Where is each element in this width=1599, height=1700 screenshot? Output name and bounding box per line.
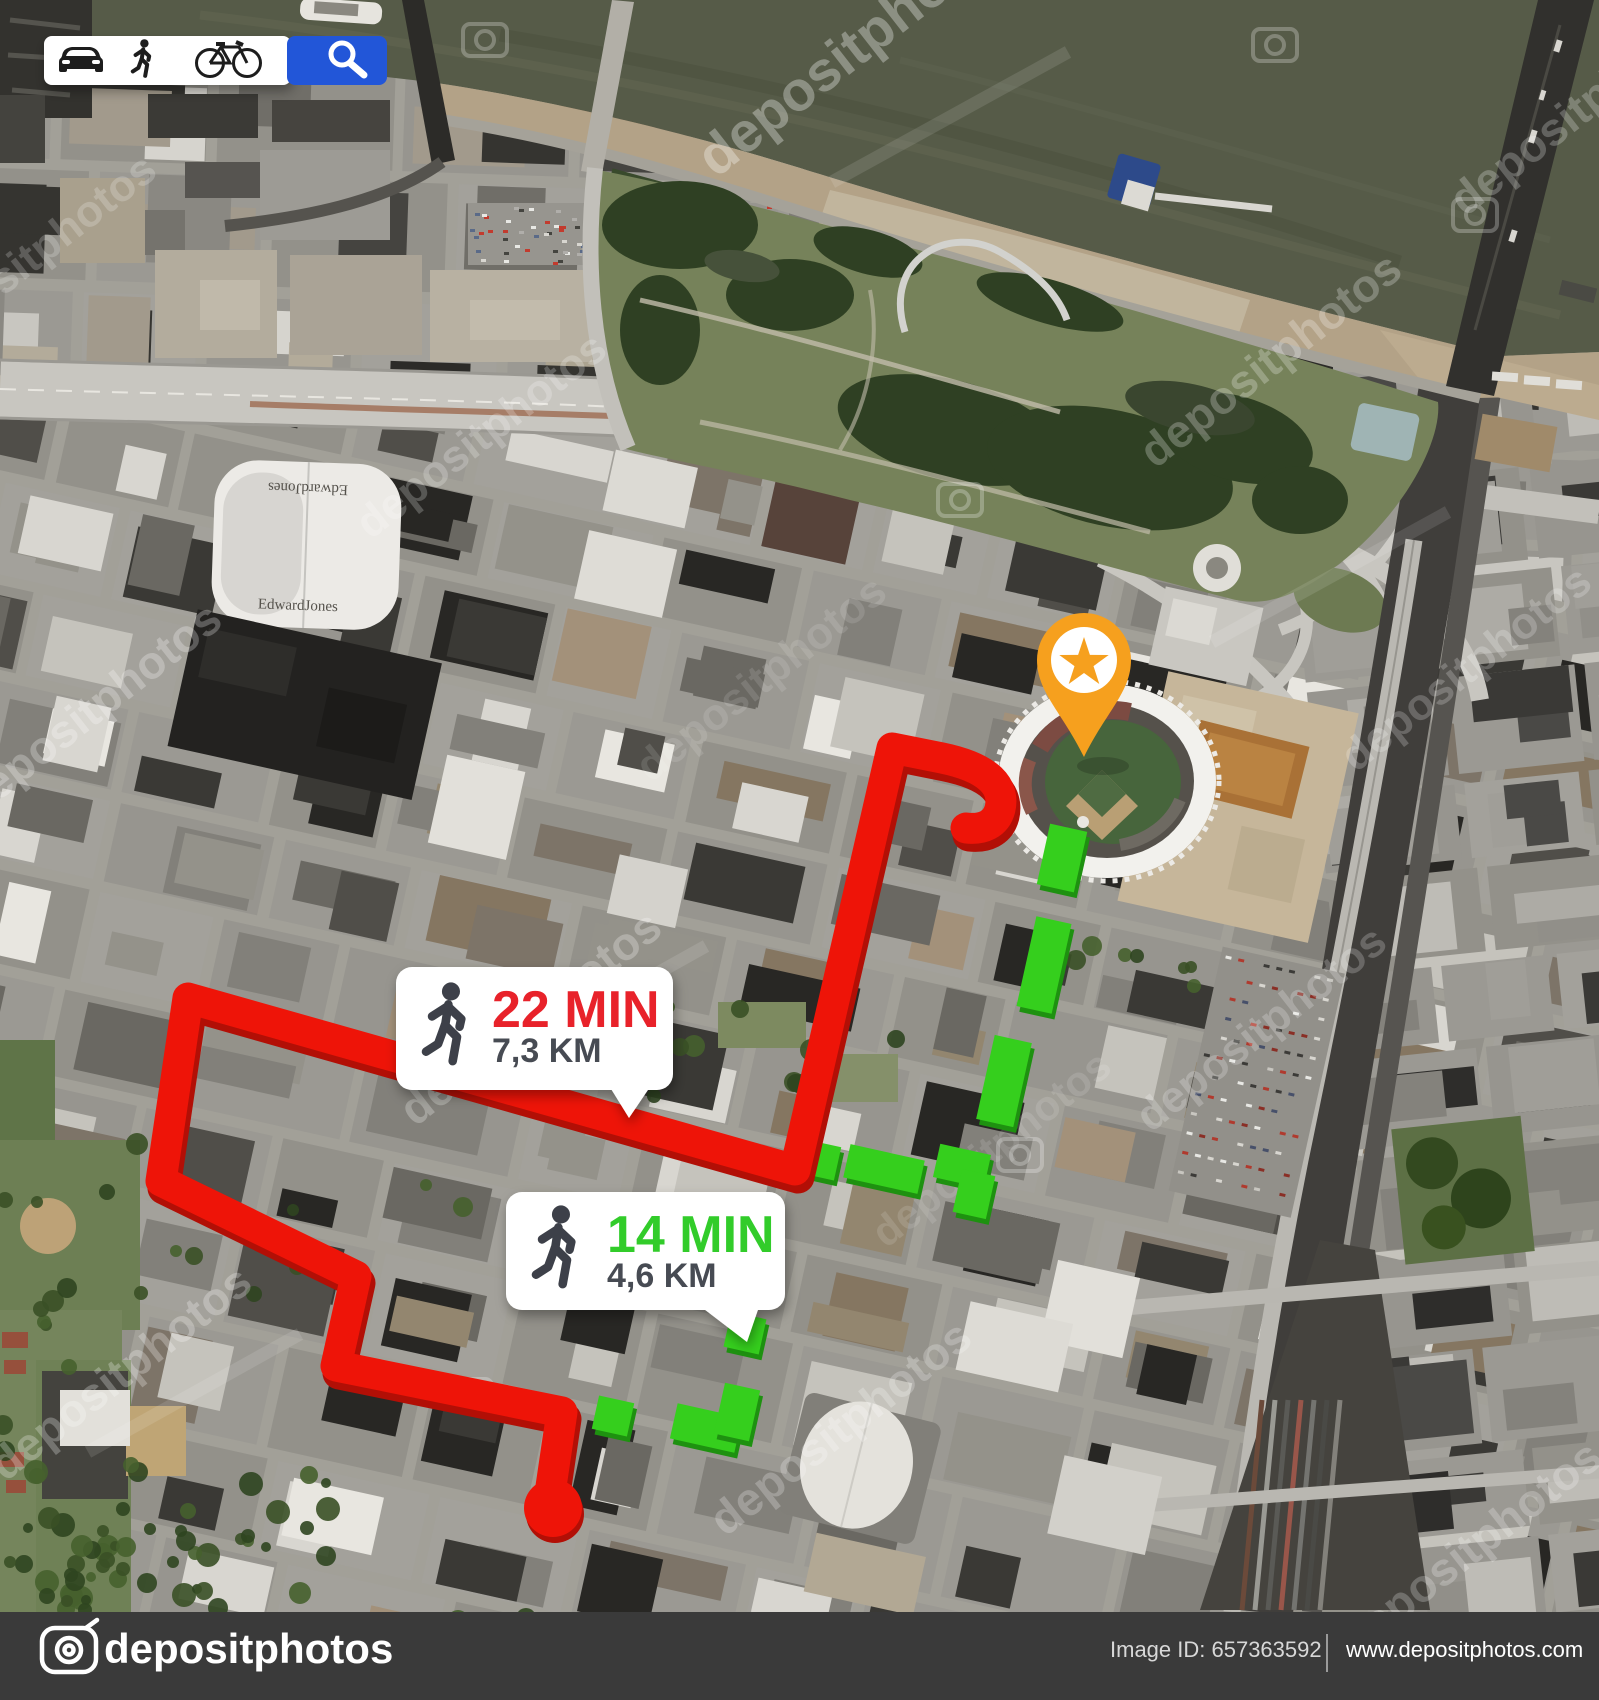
svg-text:7,3 KM: 7,3 KM bbox=[492, 1032, 602, 1070]
svg-text:EdwardJones: EdwardJones bbox=[258, 596, 339, 615]
svg-text:EdwardJones: EdwardJones bbox=[268, 479, 349, 498]
svg-text:Image ID: 657363592: Image ID: 657363592 bbox=[1110, 1637, 1322, 1662]
svg-text:4,6 KM: 4,6 KM bbox=[607, 1257, 717, 1295]
svg-text:22 MIN: 22 MIN bbox=[492, 981, 660, 1039]
svg-text:depositphotos: depositphotos bbox=[104, 1625, 393, 1672]
svg-text:14 MIN: 14 MIN bbox=[607, 1206, 775, 1264]
svg-text:www.depositphotos.com: www.depositphotos.com bbox=[1345, 1637, 1583, 1662]
